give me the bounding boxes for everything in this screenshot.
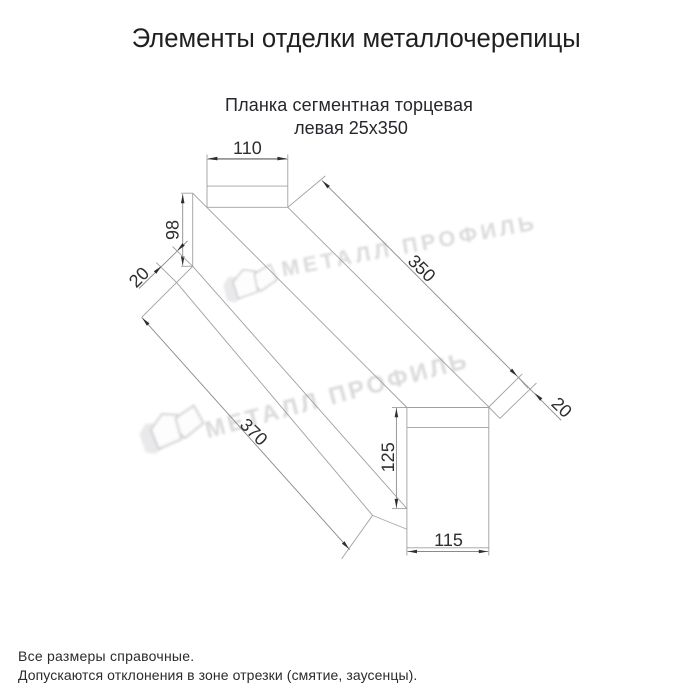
svg-text:110: 110 <box>233 138 262 158</box>
svg-text:МЕТАЛЛ ПРОФИЛЬ: МЕТАЛЛ ПРОФИЛЬ <box>280 210 540 281</box>
svg-text:20: 20 <box>548 393 576 421</box>
svg-text:20: 20 <box>125 263 153 291</box>
svg-text:98: 98 <box>162 220 182 240</box>
svg-text:115: 115 <box>434 530 463 550</box>
svg-text:125: 125 <box>378 442 398 472</box>
